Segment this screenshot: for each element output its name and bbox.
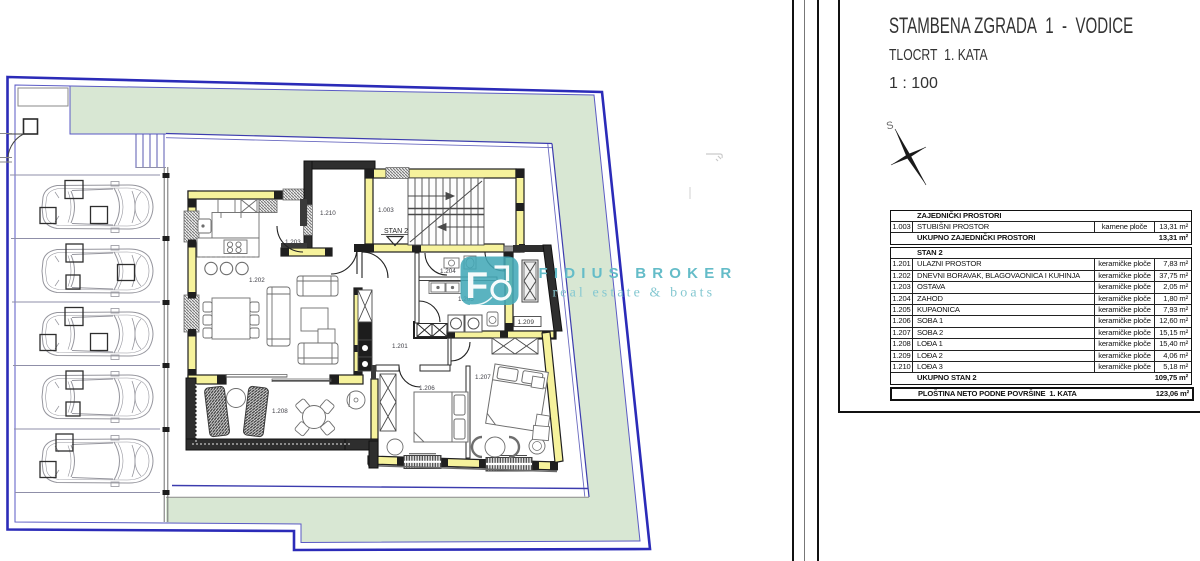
svg-text:1.201: 1.201 (392, 343, 408, 350)
svg-text:FIDIUS BROKER: FIDIUS BROKER (539, 265, 738, 282)
svg-text:F: F (466, 265, 489, 306)
svg-text:real estate & boats: real estate & boats (553, 286, 716, 301)
svg-text:1.207: 1.207 (475, 374, 491, 381)
svg-text:STAN 2: STAN 2 (384, 228, 408, 235)
svg-text:S: S (885, 119, 894, 132)
svg-text:1.203: 1.203 (285, 239, 301, 246)
svg-text:1.206: 1.206 (419, 385, 435, 392)
svg-text:1.204: 1.204 (440, 268, 456, 275)
svg-text:1.210: 1.210 (320, 210, 336, 217)
svg-text:1.209: 1.209 (518, 319, 535, 326)
svg-text:1.202: 1.202 (249, 277, 265, 284)
svg-text:1.003: 1.003 (378, 207, 394, 214)
svg-text:1.208: 1.208 (272, 408, 288, 415)
